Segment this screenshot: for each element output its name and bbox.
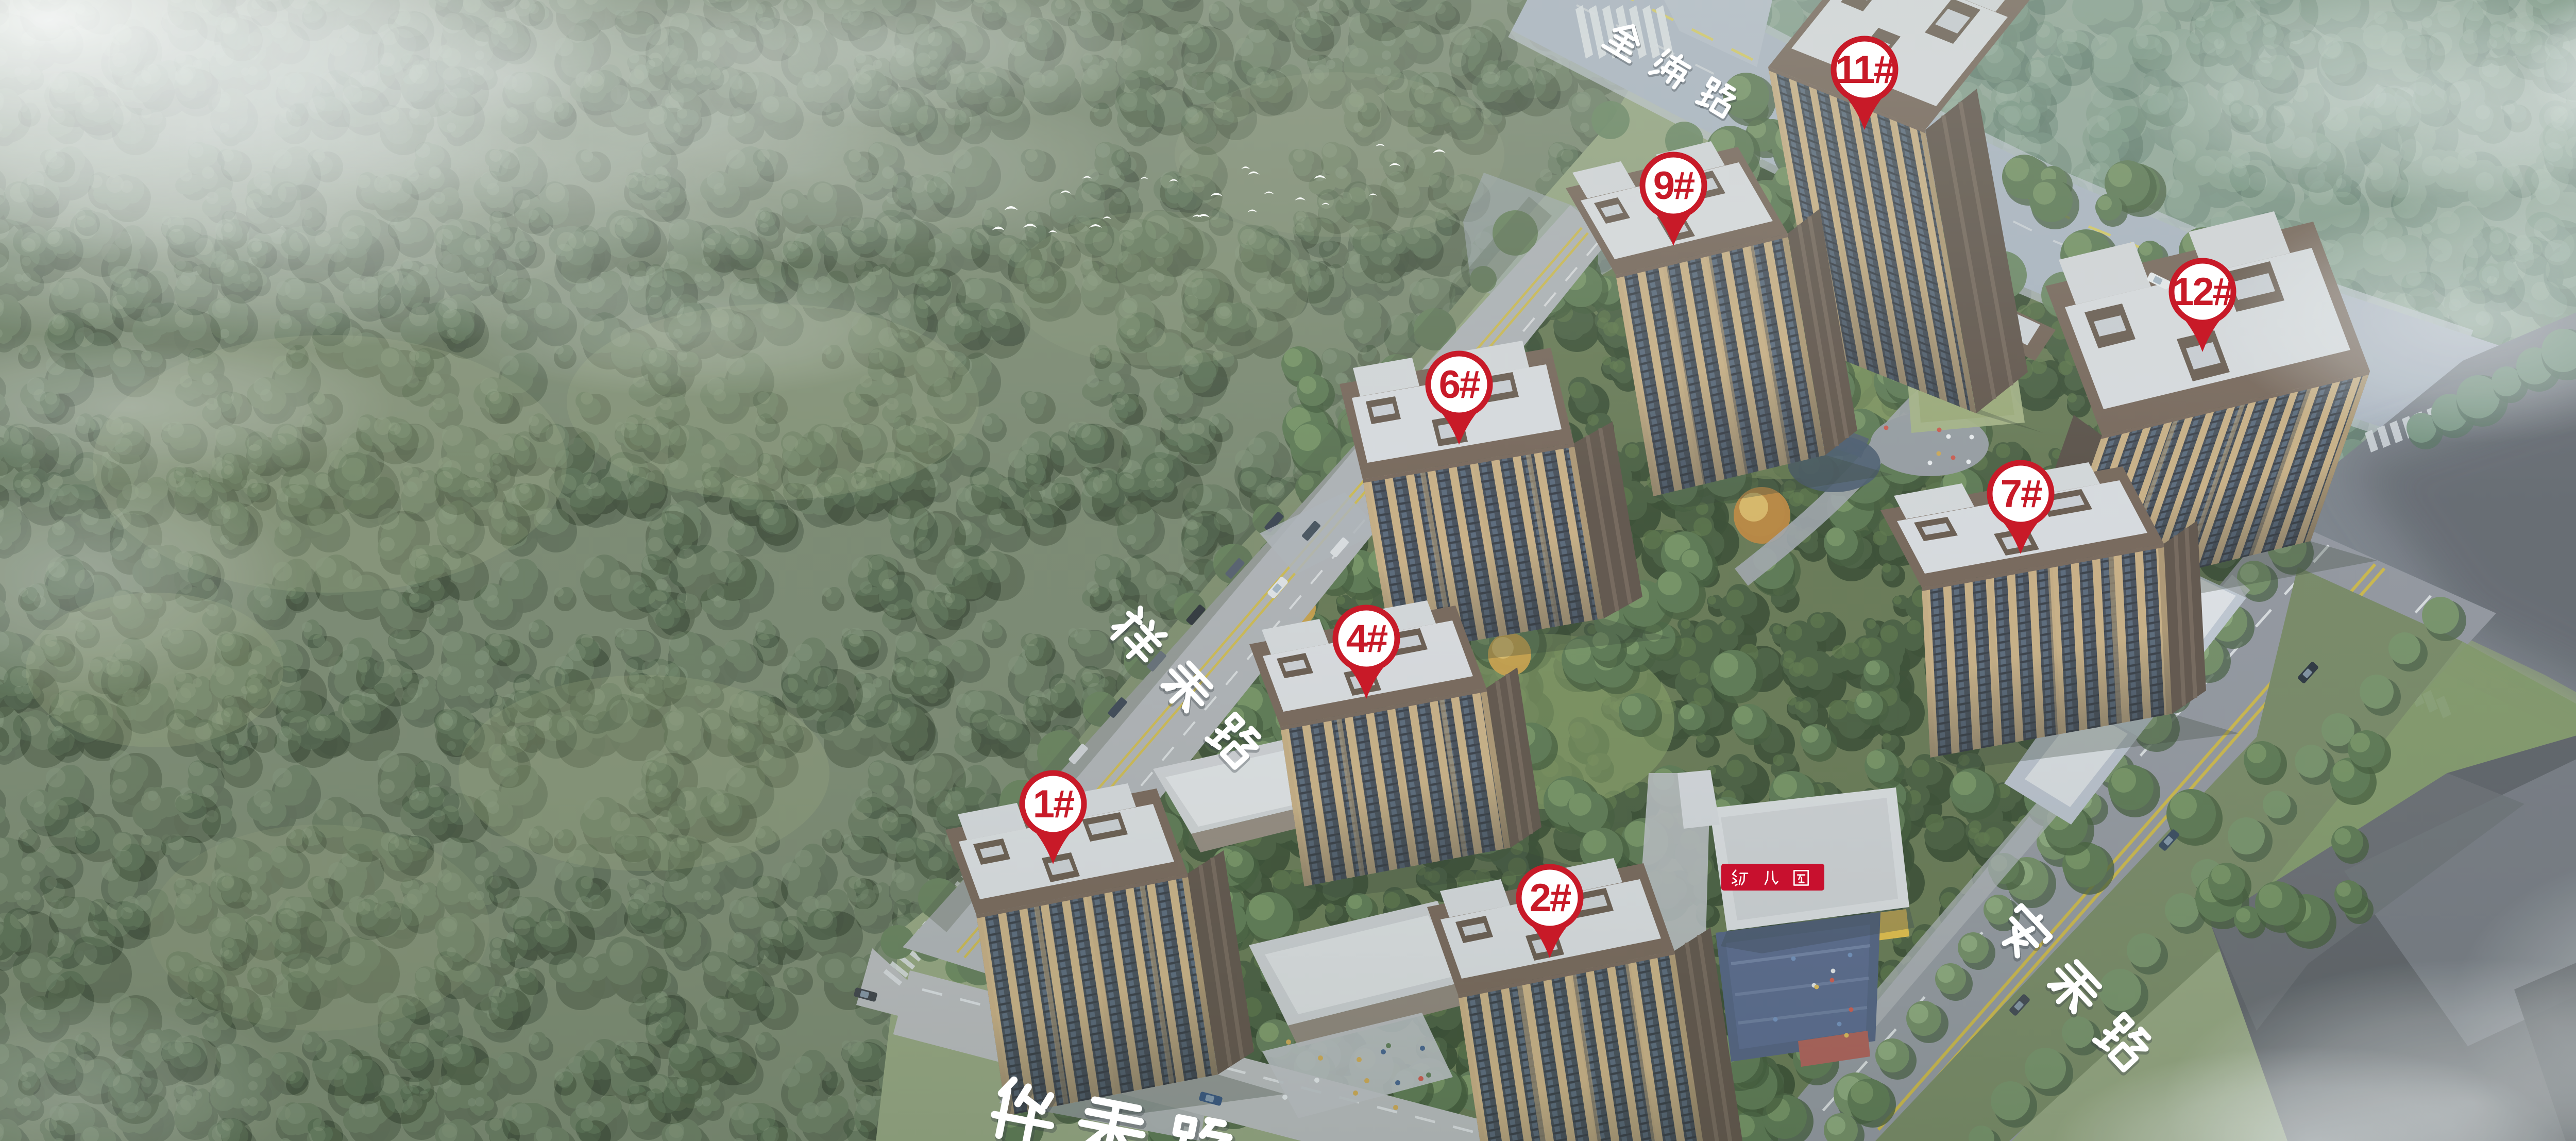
svg-text:6#: 6# [1439,363,1481,407]
svg-text:12#: 12# [2172,270,2234,314]
svg-text:7#: 7# [2001,472,2042,516]
svg-text:2#: 2# [1530,876,1571,920]
svg-text:1#: 1# [1033,782,1075,826]
svg-text:4#: 4# [1346,617,1388,661]
svg-text:11#: 11# [1835,48,1895,92]
svg-text:9#: 9# [1653,164,1695,208]
